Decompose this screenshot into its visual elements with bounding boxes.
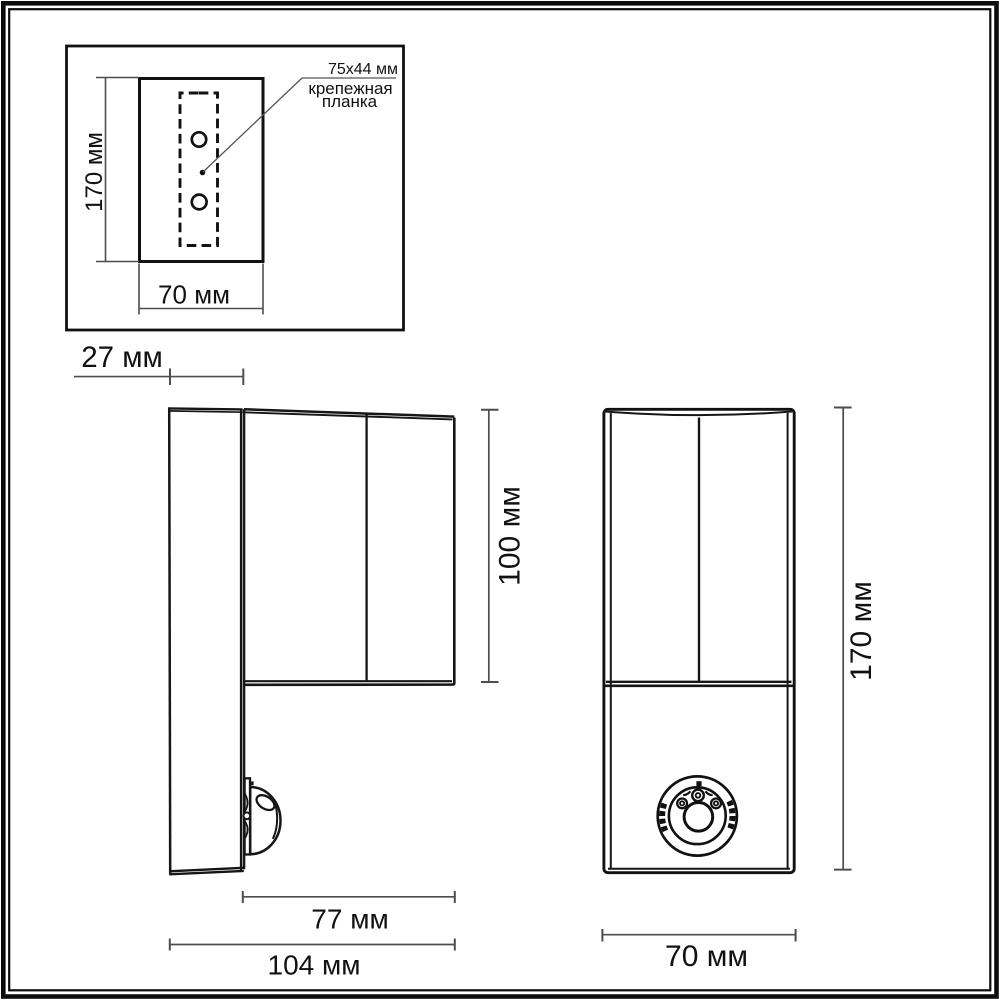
svg-text:планка: планка xyxy=(322,92,378,111)
svg-text:77 мм: 77 мм xyxy=(311,904,388,935)
svg-text:75x44 мм: 75x44 мм xyxy=(328,61,398,78)
svg-text:170 мм: 170 мм xyxy=(81,132,108,212)
svg-text:70 мм: 70 мм xyxy=(665,940,748,973)
svg-text:100 мм: 100 мм xyxy=(493,486,526,586)
svg-text:104 мм: 104 мм xyxy=(268,950,361,981)
svg-text:70 мм: 70 мм xyxy=(158,280,230,310)
svg-text:170 мм: 170 мм xyxy=(845,581,878,681)
svg-text:27 мм: 27 мм xyxy=(81,341,163,374)
